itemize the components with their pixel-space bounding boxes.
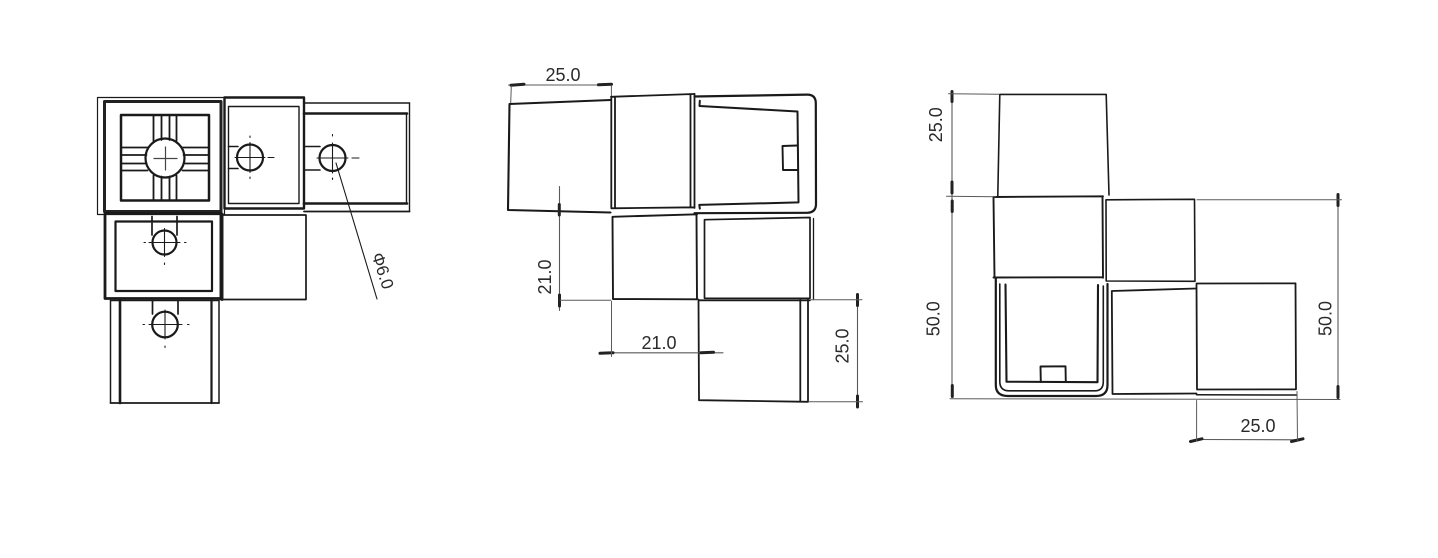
svg-text:25.0: 25.0 (1240, 416, 1275, 436)
svg-text:25.0: 25.0 (833, 328, 853, 363)
svg-text:Φ6.0: Φ6.0 (368, 250, 398, 291)
svg-text:50.0: 50.0 (923, 301, 943, 336)
svg-text:50.0: 50.0 (1315, 301, 1335, 336)
svg-text:25.0: 25.0 (926, 107, 946, 142)
svg-text:21.0: 21.0 (641, 333, 676, 353)
svg-text:25.0: 25.0 (545, 65, 580, 85)
svg-text:21.0: 21.0 (535, 259, 555, 294)
